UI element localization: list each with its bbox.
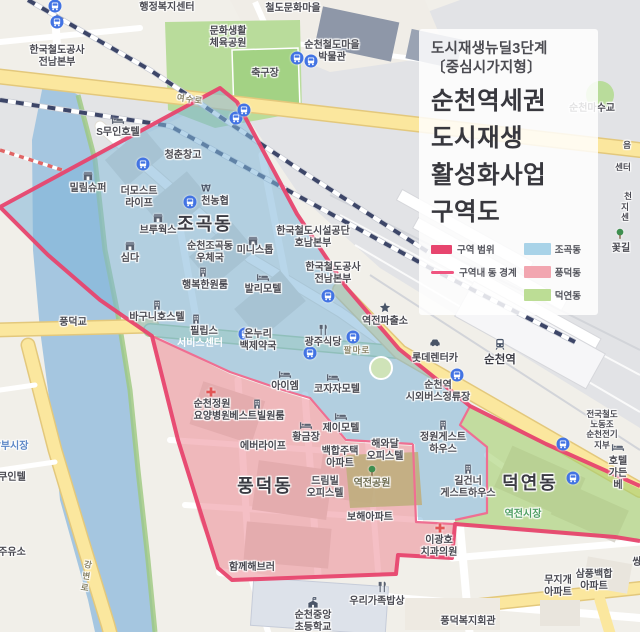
map-label[interactable]: 광주식당 — [305, 337, 342, 349]
map-label[interactable]: 해와달 오피스텔 — [367, 439, 404, 463]
tree-icon[interactable] — [366, 465, 379, 478]
map-label[interactable]: 행정복지센터 — [139, 2, 194, 14]
fork-icon[interactable] — [317, 324, 330, 337]
map-label[interactable]: 롯데렌터카 — [412, 353, 458, 365]
map-label[interactable]: 역전파출소 — [362, 316, 408, 328]
map-label[interactable]: 한국철도공사 전남본부 — [29, 45, 84, 69]
bus-icon[interactable] — [322, 290, 335, 303]
cross-icon[interactable] — [205, 386, 218, 399]
bed-icon[interactable] — [112, 114, 125, 127]
map-label[interactable]: 무지개 아파트 — [544, 575, 572, 599]
map-label[interactable]: 밀림슈퍼 — [70, 183, 107, 195]
map-label[interactable]: 행복한원룸 — [182, 280, 228, 292]
bldg-icon[interactable] — [151, 299, 164, 312]
map-label[interactable]: 코자자모텔 — [314, 384, 360, 396]
map-label[interactable]: 전국철도노동조 순천전기지부 — [583, 409, 621, 450]
bus-icon[interactable] — [184, 196, 197, 209]
map-label[interactable]: 우리가족밥상 — [349, 596, 404, 608]
police-icon[interactable] — [379, 302, 392, 315]
map-label[interactable]: 꽃길 — [612, 243, 630, 255]
panel-title-line3: 활성화사업 — [431, 158, 586, 195]
fork-icon[interactable] — [376, 581, 389, 594]
legend-jogok-label: 조곡동 — [555, 242, 581, 256]
dong-label-jogok: 조곡동 — [177, 214, 233, 236]
map-label[interactable]: 역전공원 — [354, 478, 391, 490]
tree-icon[interactable] — [614, 228, 627, 241]
deokyeon-color-chip — [524, 289, 551, 301]
map-label[interactable]: 정원게스트 하우스 — [420, 432, 466, 456]
map-label[interactable]: 풍덕교 — [59, 317, 87, 329]
bldg-icon[interactable] — [197, 266, 210, 279]
map-label[interactable]: 철도문화마을 — [265, 3, 320, 15]
map-label[interactable]: 쿠인텔 — [0, 472, 26, 484]
map-label[interactable]: 쌍 — [632, 557, 640, 569]
map-label[interactable]: 바구니호스텔 — [129, 312, 184, 324]
school-icon[interactable] — [307, 597, 320, 610]
roundabout — [370, 357, 392, 379]
panel-title-line4: 구역도 — [431, 195, 586, 232]
map-label[interactable]: 순천철도마을 박물관 — [304, 40, 359, 64]
dong-label-pungdeok: 풍덕동 — [237, 476, 293, 498]
cross-icon[interactable] — [434, 522, 447, 535]
bldg-icon[interactable] — [462, 463, 475, 476]
legend-inner-boundary: 구역내 동 경계 — [431, 265, 517, 279]
map-label[interactable]: 더모스트 라이프 — [121, 186, 158, 210]
bus-icon[interactable] — [347, 331, 360, 344]
map-label[interactable]: 길건너 게스트하우스 — [440, 476, 495, 500]
map-label[interactable]: 발리모텔 — [245, 284, 282, 296]
map-label[interactable]: 에버라이프 — [240, 441, 286, 453]
panel-title-line2: 도시재생 — [431, 121, 586, 158]
dong-label-deokyeon: 덕연동 — [502, 473, 558, 495]
map-label[interactable]: 팔마로 — [344, 345, 370, 355]
map-label[interactable]: 이광호 치과의원 — [421, 535, 458, 559]
bus-icon[interactable] — [51, 16, 64, 29]
map-label[interactable]: 축구장 — [251, 68, 279, 80]
map-label[interactable]: 보해아파트 — [347, 512, 393, 524]
map-label[interactable]: 호텔가든베 — [607, 456, 629, 492]
bus-icon[interactable] — [567, 472, 580, 485]
map-label[interactable]: 한국철도공사 전남본부 — [305, 262, 360, 286]
info-panel: 도시재생뉴딜3단계 〔중심시가지형〕 순천역세권 도시재생 활성화사업 구역도 … — [419, 29, 598, 315]
bed-icon[interactable] — [335, 410, 348, 423]
bed-icon[interactable] — [300, 419, 313, 432]
map-label[interactable]: 순천조곡동 우체국 — [187, 241, 233, 265]
map-label[interactable]: 베스트빌원룸 — [229, 411, 284, 423]
bed-icon[interactable] — [327, 371, 340, 384]
won-icon[interactable]: W — [200, 182, 213, 195]
map-label[interactable]: 미니스톱 — [237, 245, 274, 257]
shop-icon[interactable] — [82, 170, 95, 183]
map-label[interactable]: 필립스 — [190, 326, 218, 338]
map-label[interactable]: 문화생활 체육공원 — [210, 26, 247, 50]
map-label[interactable]: 온누리 백제약국 — [240, 329, 277, 353]
panel-title-line1: 순천역세권 — [431, 84, 586, 121]
map-label[interactable]: 브루웍스 — [140, 225, 177, 237]
map-label[interactable]: 풍덕복지회관 — [440, 616, 495, 628]
legend-boundary: 구역 범위 — [431, 242, 517, 256]
map-label[interactable]: 주유소 — [0, 547, 26, 559]
bed-icon[interactable] — [279, 368, 292, 381]
panel-subtitle-line1: 도시재생뉴딜3단계 — [431, 40, 586, 59]
pungdeok-color-chip — [524, 266, 551, 278]
map-label[interactable]: 백합주택 아파트 — [322, 446, 359, 470]
map-label[interactable]: 삼풍백합 아파트 — [576, 569, 613, 593]
legend-deokyeon-label: 덕연동 — [555, 288, 581, 302]
bldg-icon[interactable] — [190, 313, 203, 326]
map-label[interactable]: 천 — [624, 191, 632, 201]
map-label[interactable]: S무인호텔 — [96, 127, 139, 139]
map-label[interactable]: 제이모텔 — [323, 423, 360, 435]
map-label[interactable]: 심다 — [121, 253, 139, 265]
map-label[interactable]: 황금장 — [292, 432, 320, 444]
bed-icon[interactable] — [257, 271, 270, 284]
jogok-color-chip — [524, 243, 551, 255]
bldg-icon[interactable] — [437, 419, 450, 432]
map-label[interactable]: 천농협 — [201, 196, 229, 208]
train-icon[interactable] — [494, 338, 507, 351]
bldg-icon[interactable] — [251, 398, 264, 411]
bus-icon[interactable] — [137, 158, 150, 171]
map-label[interactable]: 서비스센터 — [177, 338, 223, 350]
bus-icon[interactable] — [238, 104, 251, 117]
map-label[interactable]: 지센 — [618, 202, 633, 222]
map-label[interactable]: 역전시장 — [505, 509, 542, 521]
map-label[interactable]: 한국철도시설공단 호남본부 — [276, 226, 350, 250]
legend-zone-deokyeon: 덕연동 — [524, 288, 581, 302]
station-label[interactable]: 순천역 — [484, 354, 516, 368]
shop-icon[interactable] — [124, 240, 137, 253]
legend-zone-pungdeok: 풍덕동 — [524, 265, 581, 279]
map-label[interactable]: 음 — [623, 140, 631, 150]
car-icon[interactable] — [429, 337, 442, 350]
map-label[interactable]: 드림빌 오피스텔 — [307, 476, 344, 500]
map-label[interactable]: 남부시장 — [0, 441, 28, 453]
bus-icon[interactable] — [49, 0, 62, 13]
inner-boundary-color-chip — [431, 271, 454, 275]
legend-boundary-label: 구역 범위 — [457, 242, 495, 256]
boundary-color-chip — [431, 245, 452, 254]
legend-pungdeok-label: 풍덕동 — [555, 265, 581, 279]
map-label[interactable]: 순천정원 요양병원 — [194, 399, 231, 423]
map-canvas[interactable]: W 행정복지센터철도문화마을문화생활 체육공원축구장순천철도마을 박물관한국철도… — [0, 0, 640, 632]
legend: 구역 범위 구역내 동 경계 조곡동 풍덕동 덕연동 — [431, 242, 586, 302]
map-label[interactable]: 센터 — [615, 162, 631, 172]
shop-icon[interactable] — [152, 212, 165, 225]
map-label[interactable]: 순천역 시외버스정류장 — [406, 380, 470, 404]
map-label[interactable]: 순천중앙 초등학교 — [295, 610, 332, 632]
bus-icon[interactable] — [557, 438, 570, 451]
legend-inner-boundary-label: 구역내 동 경계 — [459, 265, 517, 279]
panel-subtitle-line2: 〔중심시가지형〕 — [431, 59, 586, 78]
bus-icon[interactable] — [291, 52, 304, 65]
legend-zone-jogok: 조곡동 — [524, 242, 581, 256]
map-label[interactable]: 청춘창고 — [165, 150, 202, 162]
map-label[interactable]: 아이엠 — [271, 381, 299, 393]
map-label[interactable]: 함께해브러 — [229, 562, 275, 574]
